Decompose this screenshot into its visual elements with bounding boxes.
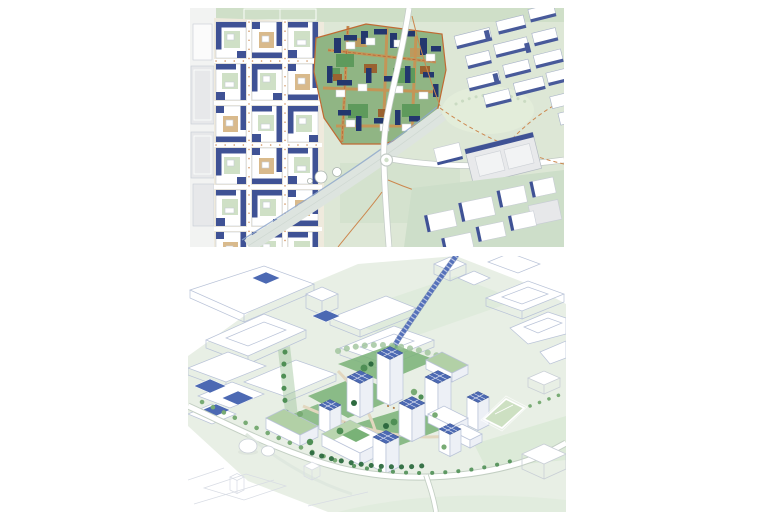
masterplan-site-plan bbox=[190, 8, 564, 247]
solar-roof-tower bbox=[377, 347, 403, 406]
industrial-strip-west bbox=[190, 8, 216, 247]
page: { "page": { "background": "#ffffff" }, "… bbox=[0, 0, 768, 512]
solar-roof-tower bbox=[347, 371, 373, 418]
axonometric-aerial-view bbox=[188, 256, 566, 512]
solar-roof-tower bbox=[373, 431, 399, 474]
solar-roof-tower bbox=[439, 424, 461, 457]
site-plan-graphic bbox=[190, 8, 564, 247]
sports-field-north bbox=[244, 9, 316, 20]
solar-roof-tower bbox=[399, 397, 425, 442]
solar-roof-tower bbox=[467, 392, 489, 431]
axonometric-graphic bbox=[188, 256, 566, 512]
